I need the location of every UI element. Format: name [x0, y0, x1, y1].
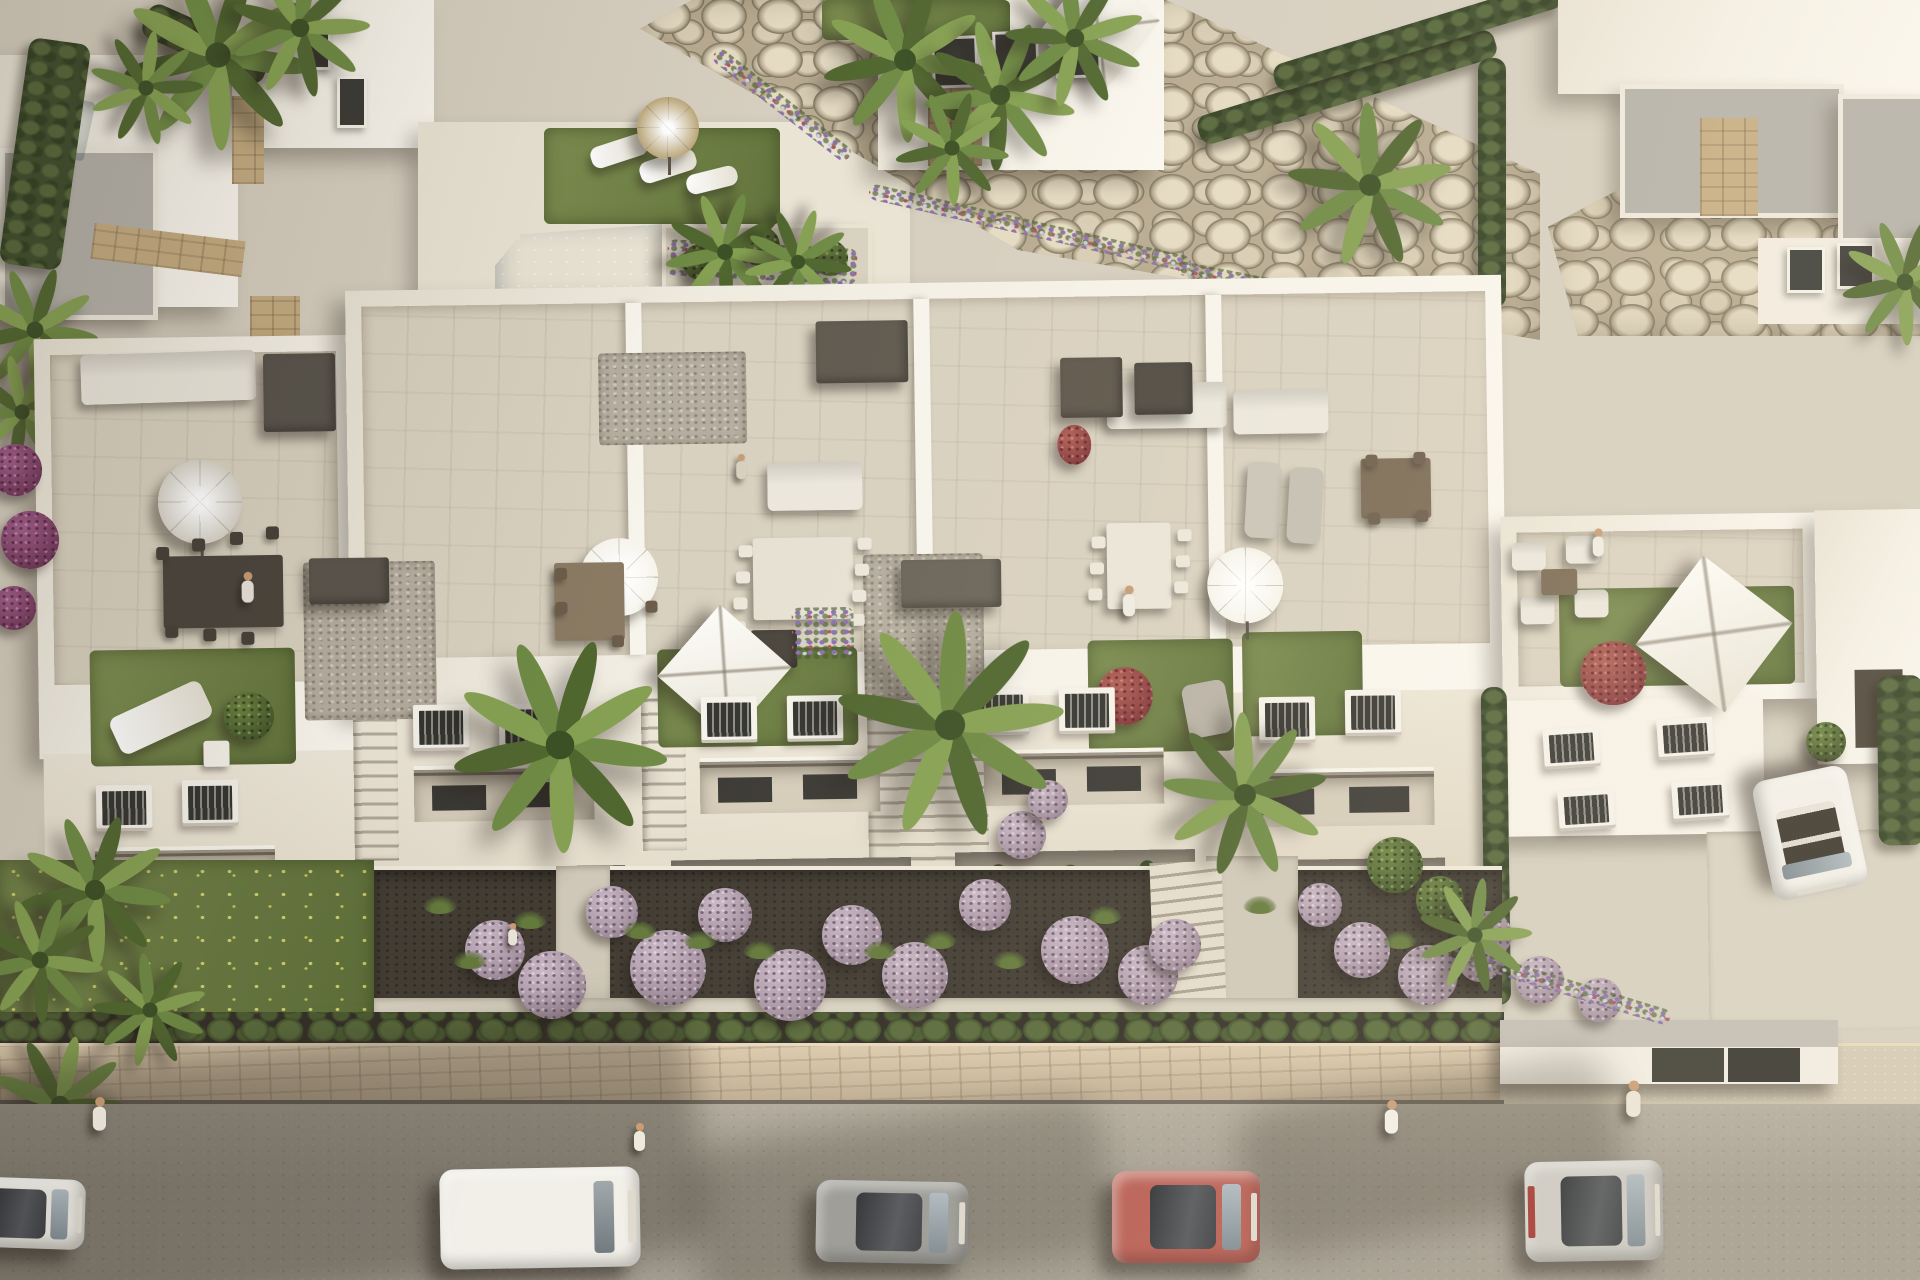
- person: [1384, 1100, 1401, 1136]
- person: [92, 1097, 109, 1133]
- items-street: [0, 0, 1920, 1280]
- red-car: [1112, 1171, 1260, 1263]
- person: [633, 1123, 647, 1153]
- person: [507, 923, 518, 947]
- person: [1625, 1081, 1643, 1120]
- gray-car: [815, 1180, 968, 1265]
- silver-car: [1524, 1160, 1664, 1262]
- white-convertible: [1750, 763, 1869, 902]
- parked-car-partial: [0, 1176, 86, 1250]
- aerial-render-scene: [0, 0, 1920, 1280]
- white-van: [439, 1166, 641, 1269]
